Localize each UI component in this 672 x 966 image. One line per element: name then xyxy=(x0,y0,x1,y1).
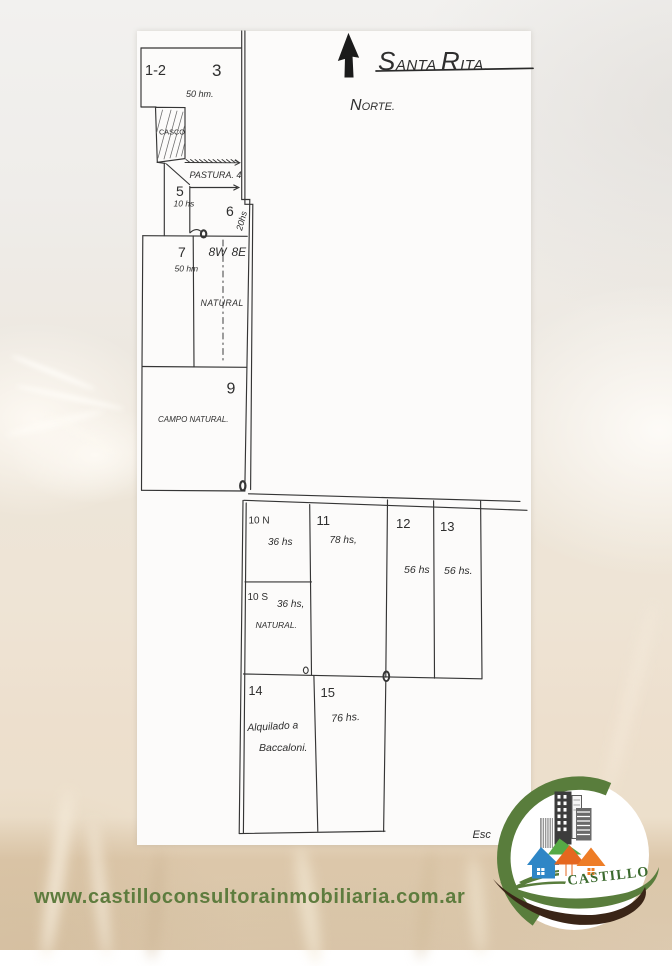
svg-text:10 S: 10 S xyxy=(248,592,269,603)
svg-text:56 hs.: 56 hs. xyxy=(444,565,473,577)
svg-text:10 hs: 10 hs xyxy=(174,199,196,209)
svg-text:6: 6 xyxy=(226,203,234,219)
svg-text:CAMPO NATURAL.: CAMPO NATURAL. xyxy=(158,415,229,424)
svg-text:50 hm: 50 hm xyxy=(175,264,199,274)
svg-text:NATURAL: NATURAL xyxy=(201,298,244,308)
svg-text:CASCO: CASCO xyxy=(159,128,185,137)
svg-text:12: 12 xyxy=(396,516,410,531)
svg-text:Esc: Esc xyxy=(473,829,492,841)
svg-text:15: 15 xyxy=(321,685,335,700)
svg-text:13: 13 xyxy=(440,519,454,534)
svg-text:50 hm.: 50 hm. xyxy=(186,89,214,99)
svg-text:8E: 8E xyxy=(232,245,248,259)
svg-text:Alquilado a: Alquilado a xyxy=(246,720,299,734)
svg-text:SANTA RITA.: SANTA RITA. xyxy=(378,46,489,76)
svg-text:56 hs: 56 hs xyxy=(404,564,430,576)
svg-text:78 hs,: 78 hs, xyxy=(330,535,357,546)
svg-text:10 N: 10 N xyxy=(249,516,270,527)
svg-text:1-2: 1-2 xyxy=(145,63,166,79)
svg-text:NORTE.: NORTE. xyxy=(350,97,395,114)
svg-text:PASTURA. 4: PASTURA. 4 xyxy=(190,170,242,180)
svg-text:Baccaloni.: Baccaloni. xyxy=(259,742,307,754)
svg-text:76 hs.: 76 hs. xyxy=(331,711,360,725)
svg-text:36 hs,: 36 hs, xyxy=(277,599,304,610)
svg-text:5: 5 xyxy=(176,183,184,199)
svg-text:36 hs: 36 hs xyxy=(268,537,292,548)
svg-text:14: 14 xyxy=(249,684,263,698)
svg-text:3: 3 xyxy=(212,61,221,80)
svg-text:9: 9 xyxy=(227,381,236,398)
svg-text:NATURAL.: NATURAL. xyxy=(256,620,297,630)
svg-text:8W: 8W xyxy=(209,245,229,259)
svg-text:20hs: 20hs xyxy=(234,210,249,233)
svg-text:7: 7 xyxy=(178,244,186,260)
svg-text:11: 11 xyxy=(317,513,331,528)
